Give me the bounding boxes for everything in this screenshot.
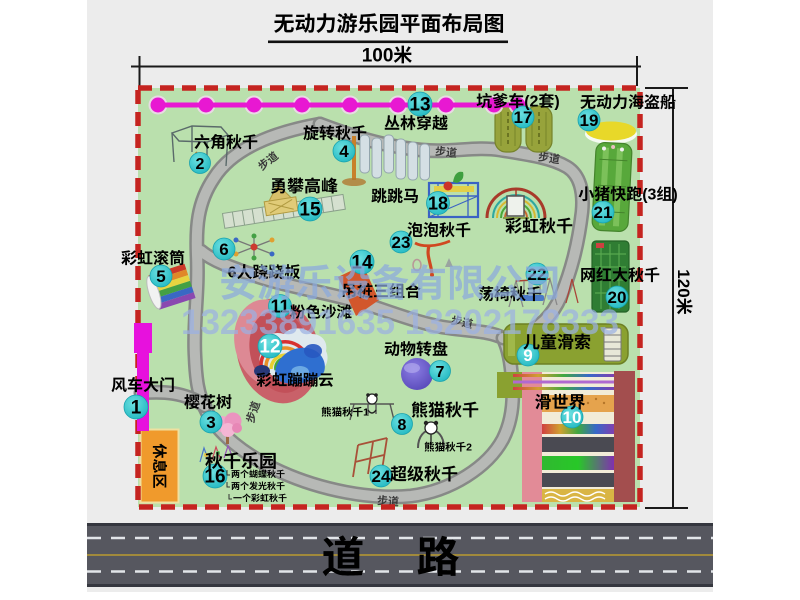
svg-text:1: 1	[363, 407, 369, 419]
svg-text:8: 8	[398, 417, 407, 434]
svg-text:10: 10	[563, 408, 582, 427]
svg-text:): )	[672, 187, 677, 204]
svg-text:13: 13	[409, 95, 430, 116]
svg-text:1: 1	[131, 398, 142, 419]
svg-text:7: 7	[436, 364, 445, 381]
svg-text:4: 4	[339, 142, 349, 161]
svg-text:21: 21	[594, 203, 613, 222]
svg-text:18: 18	[428, 193, 448, 213]
svg-text:(2: (2	[524, 94, 538, 111]
svg-text:23: 23	[392, 233, 411, 252]
svg-text:100: 100	[362, 46, 394, 67]
svg-text:16: 16	[204, 467, 225, 488]
svg-text:120: 120	[674, 269, 693, 297]
svg-text:(3: (3	[642, 187, 656, 204]
svg-text:2: 2	[196, 156, 205, 173]
svg-text:3: 3	[206, 413, 215, 432]
svg-text:19: 19	[580, 111, 599, 130]
svg-text:2: 2	[466, 442, 472, 454]
svg-text:5: 5	[156, 267, 165, 286]
svg-text:): )	[554, 94, 559, 111]
svg-text:6: 6	[219, 240, 228, 259]
svg-text:17: 17	[514, 108, 533, 127]
svg-text:15: 15	[299, 200, 321, 221]
svg-text:24: 24	[372, 467, 391, 486]
svg-text:13233891635 13202178333: 13233891635 13202178333	[181, 303, 619, 342]
